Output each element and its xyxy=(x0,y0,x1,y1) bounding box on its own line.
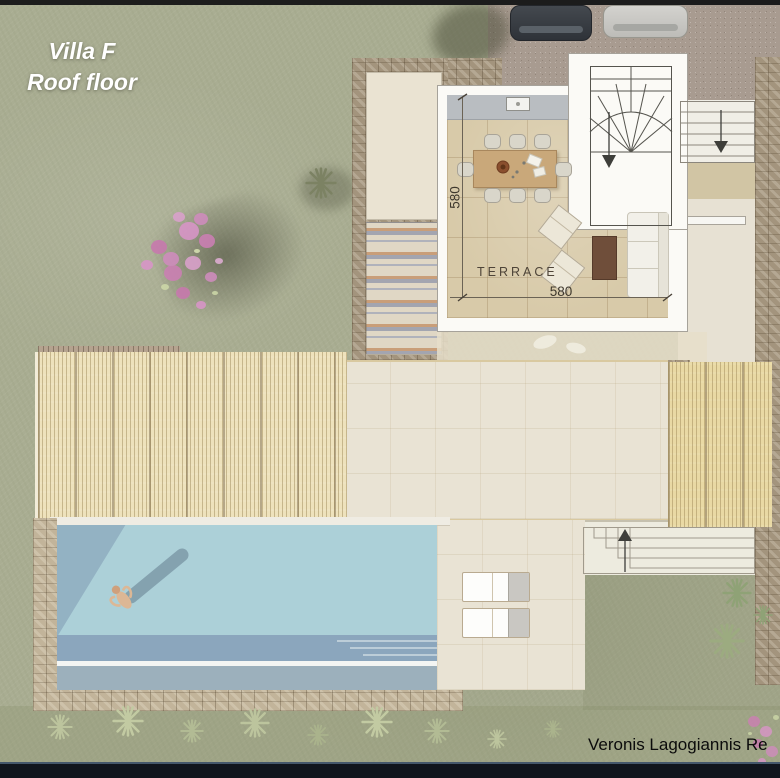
sun-lounger-2 xyxy=(462,608,530,638)
sofa-cushion-line xyxy=(628,268,659,269)
bougainvillea xyxy=(163,252,179,266)
dining-chair xyxy=(555,162,572,177)
car xyxy=(510,5,592,41)
balcony-railing xyxy=(684,216,746,225)
dim-label-horizontal: 580 xyxy=(544,284,578,299)
dining-table xyxy=(473,150,557,188)
sofa-cushion-line xyxy=(628,241,659,242)
dining-chair xyxy=(509,134,526,149)
sofa xyxy=(627,212,669,298)
pool-deep-end xyxy=(57,635,437,662)
pool-overflow xyxy=(57,666,437,690)
sofa-back xyxy=(658,213,668,297)
bottom-bar xyxy=(0,762,780,778)
dim-label-vertical: 580 xyxy=(448,181,463,215)
lower-floor-strip xyxy=(437,332,707,362)
side-path-band xyxy=(678,163,755,199)
skylight xyxy=(506,97,530,111)
dining-chair xyxy=(534,188,551,203)
sun-lounger-headrest xyxy=(508,609,529,637)
pergola-right xyxy=(668,362,772,527)
pergola-left xyxy=(35,352,347,520)
pool-stone-bottom xyxy=(33,690,463,711)
terrace-label: TERRACE xyxy=(477,265,558,279)
sun-lounger-headrest xyxy=(508,573,529,601)
title-line-1: Villa F xyxy=(6,36,158,67)
watermark: Veronis Lagogiannis Re xyxy=(588,735,768,755)
stairwell xyxy=(568,53,688,230)
site-plan: TERRACE 580 580 Villa F Roof floor Veron… xyxy=(0,0,780,778)
lawn-right-tint xyxy=(583,575,780,710)
skylight-dot xyxy=(516,102,520,106)
striped-canopy xyxy=(366,222,442,355)
car-2-windshield xyxy=(613,24,678,31)
car-windshield xyxy=(519,26,583,33)
sun-lounger-fold xyxy=(492,573,493,601)
top-border xyxy=(0,0,780,5)
flowers-corner xyxy=(748,716,760,727)
garden-walkway xyxy=(583,520,755,575)
dining-chair xyxy=(484,134,501,149)
left-wing-room xyxy=(366,72,442,220)
dining-chair xyxy=(509,188,526,203)
palm-shadow xyxy=(300,168,355,210)
pool-deck xyxy=(437,520,585,690)
dining-chair xyxy=(457,162,474,177)
side-steps-area xyxy=(678,100,755,164)
car-2 xyxy=(603,5,688,38)
main-deck xyxy=(345,360,668,522)
dining-chair xyxy=(484,188,501,203)
dining-chair xyxy=(534,134,551,149)
pool-stone-left xyxy=(33,518,57,710)
title-line-2: Roof floor xyxy=(6,67,158,98)
sun-lounger xyxy=(462,572,530,602)
sun-lounger-fold xyxy=(492,609,493,637)
page-title: Villa F Roof floor xyxy=(6,36,158,98)
coffee-table xyxy=(592,236,617,280)
